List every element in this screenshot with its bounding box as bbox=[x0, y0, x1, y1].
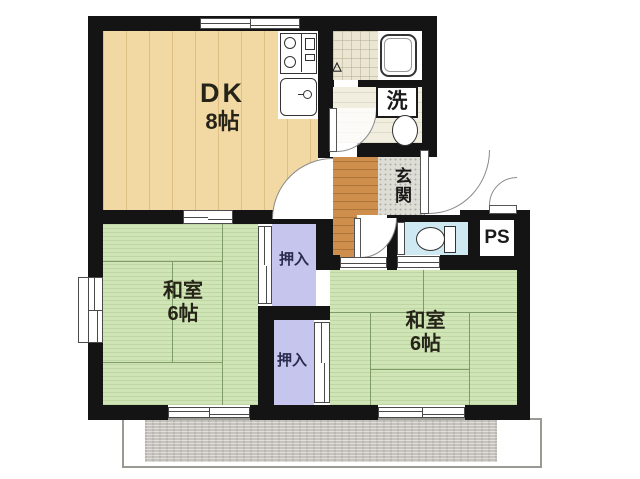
wall-closet-mid bbox=[258, 306, 330, 320]
dk-name: DK bbox=[175, 78, 270, 109]
toilet-door bbox=[397, 222, 405, 255]
bath-door-opening bbox=[334, 80, 358, 87]
washitsu-left-name: 和室 bbox=[138, 280, 228, 303]
sliding-window-icon-bottom-left bbox=[168, 407, 250, 418]
bath-door-triangle-icon: △ bbox=[329, 60, 345, 75]
wall-right-upper bbox=[422, 16, 437, 157]
bathtub-icon bbox=[380, 34, 417, 77]
door-swing-icon-entrance-outer bbox=[489, 177, 517, 205]
room-label-washitsu-right: 和室 6帖 bbox=[378, 310, 473, 356]
closet-top-label: 押入 bbox=[270, 251, 318, 268]
ps-box: PS bbox=[475, 215, 519, 261]
wall-bottom bbox=[88, 405, 168, 420]
stove-icon bbox=[280, 33, 317, 74]
washitsu-left-size: 6帖 bbox=[138, 303, 228, 326]
room-label-dk: DK 8帖 bbox=[175, 78, 270, 134]
tatami-line bbox=[103, 261, 222, 262]
wall-room-top bbox=[387, 255, 397, 270]
balcony-floor bbox=[145, 420, 497, 462]
washitsu-right-name: 和室 bbox=[378, 310, 473, 333]
door-leaf-washroom bbox=[329, 108, 337, 152]
washbasin-icon bbox=[392, 115, 418, 146]
genkan-label: 玄関 bbox=[387, 160, 411, 212]
door-swing-icon-entrance bbox=[429, 150, 490, 214]
dk-size: 8帖 bbox=[175, 109, 270, 134]
laundry-label: 洗 bbox=[387, 90, 408, 113]
sliding-door-hall-washitsu bbox=[340, 257, 387, 268]
kitchen-sink-icon bbox=[280, 78, 317, 116]
room-label-washitsu-left: 和室 6帖 bbox=[138, 280, 228, 326]
wall-room-top bbox=[330, 255, 340, 270]
closet-bottom-fusuma-door bbox=[314, 322, 330, 403]
wall-bottom bbox=[250, 405, 378, 420]
tatami-line bbox=[370, 369, 469, 370]
sliding-window-icon-left bbox=[88, 277, 103, 343]
sliding-door-room-top bbox=[397, 256, 440, 268]
door-leaf-entrance-outer bbox=[489, 205, 517, 214]
tatami-line bbox=[370, 312, 371, 405]
toilet-tank-icon bbox=[444, 226, 456, 253]
washitsu-right-size: 6帖 bbox=[378, 333, 473, 356]
door-leaf-hall bbox=[354, 218, 361, 258]
sliding-window-icon-top bbox=[200, 18, 300, 29]
tatami-line bbox=[103, 362, 222, 363]
sliding-door-dk-washitsu bbox=[183, 210, 233, 224]
toilet-icon bbox=[416, 227, 445, 251]
closet-bottom-label: 押入 bbox=[268, 352, 316, 369]
floor-plan: △ 洗 PS DK 8帖 和室 6帖 和室 6帖 押入 押入 玄関 bbox=[0, 0, 640, 479]
wall-toilet-top bbox=[387, 215, 478, 222]
tatami-line bbox=[423, 270, 424, 312]
sliding-window-icon-bottom-right bbox=[378, 407, 465, 418]
washing-machine-box: 洗 bbox=[376, 86, 418, 118]
door-leaf-entrance bbox=[420, 150, 429, 214]
ps-label: PS bbox=[484, 227, 509, 248]
